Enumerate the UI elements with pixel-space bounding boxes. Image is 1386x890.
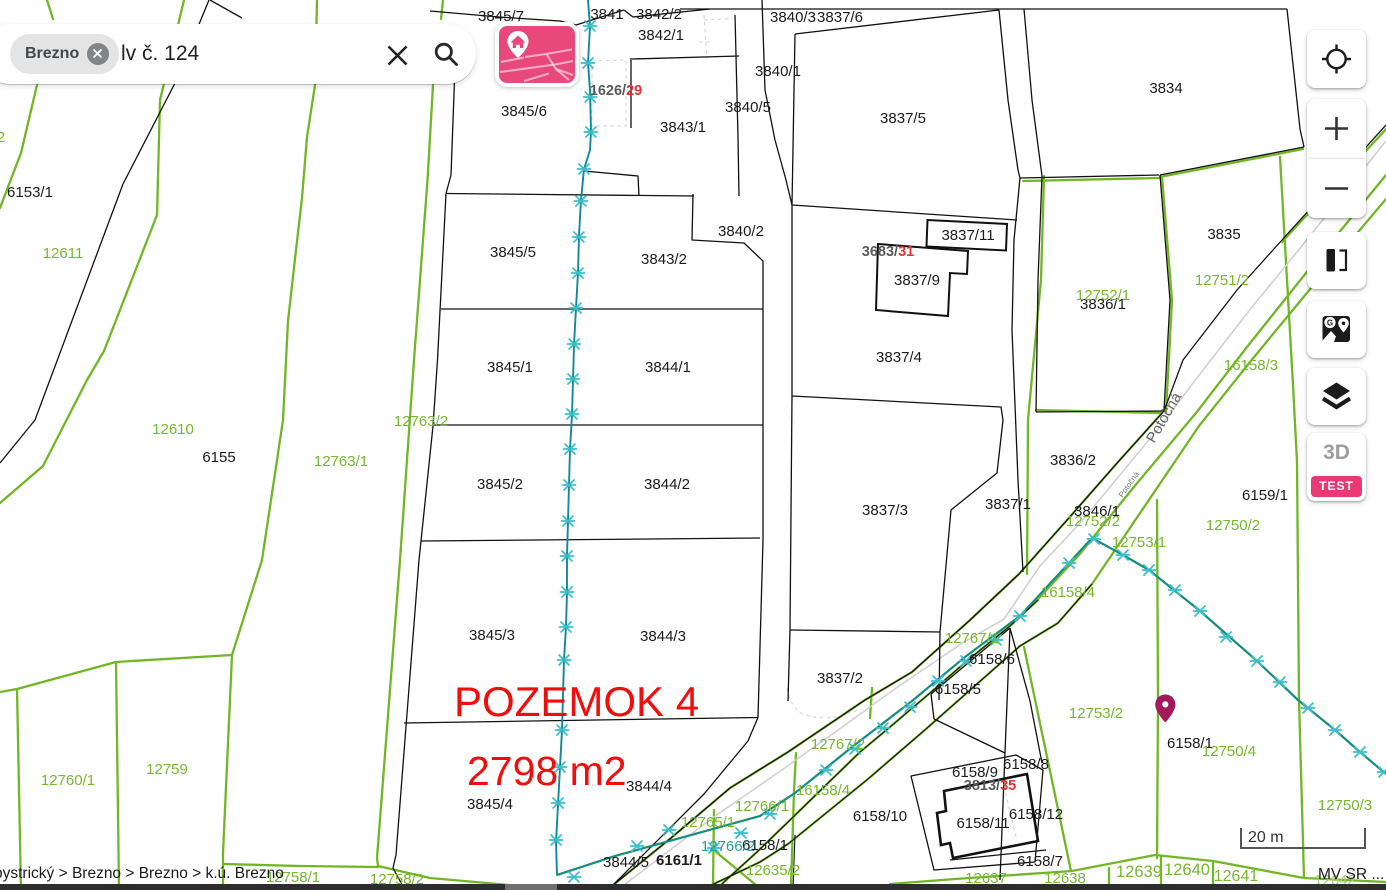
svg-text:3837/11: 3837/11 bbox=[941, 227, 994, 244]
svg-text:3844/1: 3844/1 bbox=[645, 359, 691, 376]
svg-text:3683/31: 3683/31 bbox=[862, 244, 914, 260]
svg-text:12641: 12641 bbox=[1214, 868, 1259, 885]
svg-text:12766/1: 12766/1 bbox=[735, 798, 789, 815]
svg-text:12610: 12610 bbox=[152, 421, 194, 438]
svg-text:12759: 12759 bbox=[146, 761, 188, 778]
svg-text:3837/1: 3837/1 bbox=[985, 496, 1031, 513]
svg-text:6158/6: 6158/6 bbox=[969, 651, 1015, 668]
svg-text:3845/3: 3845/3 bbox=[469, 627, 515, 644]
svg-text:12751/2: 12751/2 bbox=[1195, 272, 1249, 289]
svg-text:3843/2: 3843/2 bbox=[641, 251, 687, 268]
svg-text:3843/1: 3843/1 bbox=[660, 119, 706, 136]
svg-text:12635/2: 12635/2 bbox=[746, 862, 800, 879]
svg-text:POZEMOK 4: POZEMOK 4 bbox=[454, 678, 699, 725]
svg-text:G: G bbox=[1327, 318, 1333, 327]
svg-text:12760/1: 12760/1 bbox=[41, 772, 95, 789]
svg-text:6158/5: 6158/5 bbox=[935, 681, 981, 698]
svg-text:3842/1: 3842/1 bbox=[638, 27, 684, 44]
svg-text:3837/3: 3837/3 bbox=[862, 502, 908, 519]
svg-text:6153/1: 6153/1 bbox=[7, 184, 53, 201]
svg-text:6158/11: 6158/11 bbox=[956, 815, 1009, 832]
svg-text:6158/10: 6158/10 bbox=[853, 808, 907, 825]
svg-text:1626/29: 1626/29 bbox=[590, 83, 642, 99]
svg-text:12767/2: 12767/2 bbox=[811, 736, 865, 753]
svg-text:12752/1: 12752/1 bbox=[1076, 287, 1130, 304]
svg-text:6155: 6155 bbox=[202, 449, 235, 466]
svg-text:6161/1: 6161/1 bbox=[656, 852, 702, 869]
svg-text:3834: 3834 bbox=[1149, 80, 1182, 97]
svg-text:12767/1: 12767/1 bbox=[945, 630, 999, 647]
svg-text:12753/2: 12753/2 bbox=[1069, 705, 1123, 722]
svg-text:20 m: 20 m bbox=[1248, 829, 1284, 846]
svg-text:3845/2: 3845/2 bbox=[477, 476, 523, 493]
svg-text:12753/1: 12753/1 bbox=[1112, 534, 1166, 551]
svg-text:12750/4: 12750/4 bbox=[1202, 743, 1256, 760]
svg-text:6159/1: 6159/1 bbox=[1242, 487, 1288, 504]
svg-text:3844/3: 3844/3 bbox=[640, 628, 686, 645]
svg-text:3842/2: 3842/2 bbox=[636, 6, 682, 23]
svg-text:12766/2: 12766/2 bbox=[701, 838, 755, 855]
svg-text:12611: 12611 bbox=[43, 245, 84, 262]
svg-text:3844/5: 3844/5 bbox=[603, 854, 649, 871]
svg-text:3837/2: 3837/2 bbox=[817, 670, 863, 687]
svg-text:3845/5: 3845/5 bbox=[490, 244, 536, 261]
svg-text:3840/2: 3840/2 bbox=[718, 223, 764, 240]
svg-text:12763/1: 12763/1 bbox=[314, 453, 368, 470]
svg-text:3837/5: 3837/5 bbox=[880, 110, 926, 127]
svg-text:3835: 3835 bbox=[1207, 226, 1240, 243]
svg-text:6158/8: 6158/8 bbox=[1003, 756, 1049, 773]
svg-text:12639: 12639 bbox=[1116, 863, 1162, 881]
svg-text:3837/6: 3837/6 bbox=[817, 9, 863, 26]
svg-text:16158/4: 16158/4 bbox=[796, 782, 850, 799]
svg-text:2: 2 bbox=[0, 129, 5, 146]
svg-text:2798 m2: 2798 m2 bbox=[467, 748, 627, 794]
svg-text:3845/4: 3845/4 bbox=[467, 796, 513, 813]
svg-text:16158/4: 16158/4 bbox=[1041, 584, 1095, 601]
svg-text:3836/2: 3836/2 bbox=[1050, 452, 1096, 469]
svg-text:12763/2: 12763/2 bbox=[394, 413, 448, 430]
svg-text:3845/1: 3845/1 bbox=[487, 359, 533, 376]
svg-text:12750/3: 12750/3 bbox=[1318, 797, 1372, 814]
svg-text:12750/2: 12750/2 bbox=[1206, 517, 1260, 534]
svg-text:3840/5: 3840/5 bbox=[725, 99, 771, 116]
svg-text:12752/2: 12752/2 bbox=[1066, 513, 1120, 530]
svg-text:3844/2: 3844/2 bbox=[644, 476, 690, 493]
svg-text:3844/4: 3844/4 bbox=[626, 778, 672, 795]
svg-text:3840/3: 3840/3 bbox=[770, 9, 816, 26]
svg-text:16158/3: 16158/3 bbox=[1224, 357, 1278, 374]
svg-text:12640: 12640 bbox=[1164, 861, 1210, 879]
svg-text:12765/1: 12765/1 bbox=[681, 814, 735, 831]
svg-text:3837/9: 3837/9 bbox=[894, 272, 940, 289]
svg-text:3840/1: 3840/1 bbox=[755, 63, 801, 80]
svg-text:6158/12: 6158/12 bbox=[1009, 806, 1063, 823]
svg-text:3813/35: 3813/35 bbox=[964, 778, 1016, 794]
svg-text:3837/4: 3837/4 bbox=[876, 349, 922, 366]
svg-text:3841: 3841 bbox=[590, 6, 623, 23]
svg-text:6158/7: 6158/7 bbox=[1017, 853, 1063, 870]
svg-text:3845/6: 3845/6 bbox=[501, 103, 547, 120]
